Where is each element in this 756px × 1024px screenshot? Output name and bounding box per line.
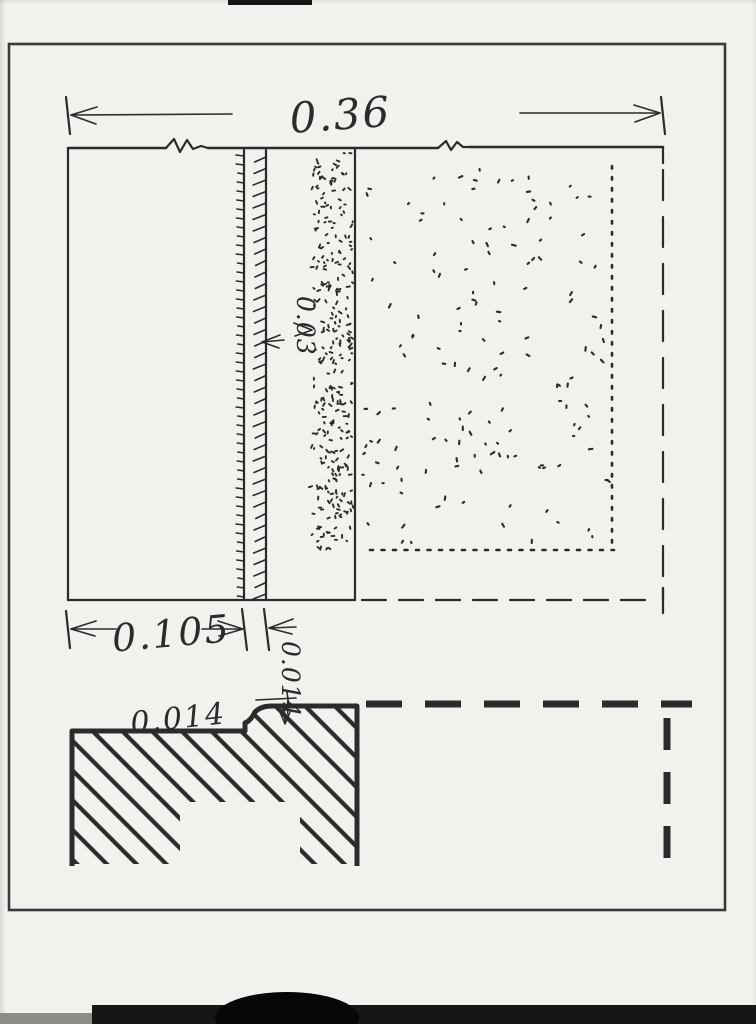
dim-tick	[66, 97, 70, 134]
dimension-total-width: 0.36	[66, 87, 665, 143]
technical-drawing: 0.36 0.105 0.014 0.03 0.014	[0, 0, 756, 1024]
membrane-ticks-long	[253, 157, 266, 599]
detail-view: 0.014	[72, 692, 692, 866]
scan-artifacts	[0, 0, 756, 1024]
dim-line	[269, 627, 296, 628]
scan-band-bottom	[92, 1005, 756, 1024]
break-symbol-right	[438, 141, 470, 150]
stipple-sparse-area	[362, 169, 610, 543]
dim-tick	[66, 611, 70, 648]
membrane-ticks-short	[236, 155, 244, 597]
scan-band-bottom-left	[0, 1013, 92, 1024]
dim-label-total: 0.36	[288, 87, 393, 143]
scan-blob	[215, 992, 359, 1024]
dim-tick	[264, 609, 269, 650]
dim-label-gap: 0.03	[291, 296, 320, 356]
scanned-drawing-sheet: 0.36 0.105 0.014 0.03 0.014	[0, 0, 756, 1024]
scan-mark-top	[228, 0, 312, 5]
dim-tick	[661, 97, 665, 134]
dim-line	[284, 703, 285, 722]
plan-view	[68, 139, 663, 613]
dimension-gap: 0.03	[262, 296, 320, 356]
dim-label-left-offset: 0.105	[110, 606, 232, 660]
dim-line	[71, 114, 232, 115]
break-symbol-left	[166, 139, 208, 152]
